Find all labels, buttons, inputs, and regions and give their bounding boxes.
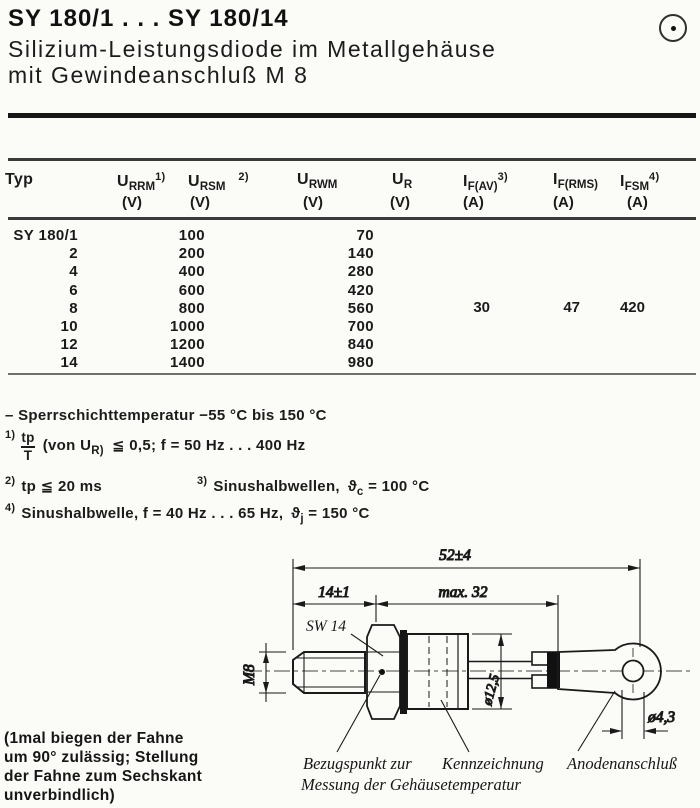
unit-ifav: (A) — [463, 194, 484, 211]
unit-ifrms: (A) — [553, 194, 574, 211]
footnote-3: 3)Sinushalbwellen,ϑc = 100 °C — [197, 475, 429, 498]
circled-dot-icon — [659, 14, 687, 42]
reference-point-dot — [379, 669, 385, 675]
table-cell: 600 — [90, 282, 205, 300]
footnote-text: (von UR)≦ 0,5; f = 50 Hz . . . 400 Hz — [43, 436, 306, 457]
col-header-ursm: URSM2) — [188, 171, 249, 193]
column-urrm: 100 200 400 600 800 1000 1200 1400 — [90, 227, 205, 373]
dimension-thread: M8 — [241, 643, 286, 702]
table-cell: 6 — [0, 282, 78, 300]
table-cell: 800 — [90, 300, 205, 318]
label-anode-terminal: Anodenanschluß — [566, 754, 677, 773]
footnote-marker: 3) — [197, 475, 207, 487]
note-line: unverbindlich) — [4, 786, 202, 805]
table-cell: 280 — [260, 263, 374, 281]
note-line: der Fahne zum Sechskant — [4, 767, 202, 786]
col-header-ifav: IF(AV)3) — [463, 171, 508, 193]
value-ifav: 30 — [430, 299, 490, 316]
table-cell: 10 — [0, 318, 78, 336]
unit-ursm: (V) — [190, 194, 210, 211]
table-cell: 400 — [90, 263, 205, 281]
table-cell: SY 180/1 — [0, 227, 78, 245]
col-header-urrm: URRM1) — [117, 171, 165, 193]
datasheet-page: SY 180/1 . . . SY 180/14 Silizium-Leistu… — [0, 0, 700, 808]
column-typ: SY 180/1 2 4 6 8 10 12 14 — [0, 227, 78, 373]
footnote-marker: 1) — [5, 429, 15, 441]
fraction-tp-T: tpT — [21, 431, 34, 463]
unit-ur: (V) — [390, 194, 410, 211]
dim-label: SW 14 — [306, 618, 346, 635]
dot — [671, 26, 676, 31]
table-bottom-rule — [8, 373, 696, 375]
footnote-4: 4)Sinushalbwelle, f = 40 Hz . . . 65 Hz,… — [5, 502, 370, 525]
value-ifsm: 420 — [585, 299, 645, 316]
label-reference-point-line2: Messung der Gehäusetemperatur — [300, 775, 522, 794]
footnote-marker: 2) — [5, 475, 15, 487]
dimension-stud-length: 14±1 — [293, 584, 376, 622]
table-cell: 560 — [260, 300, 374, 318]
table-cell: 2 — [0, 245, 78, 263]
label-marking: Kennzeichnung — [441, 754, 544, 773]
junction-temp-note: – Sperrschichttemperatur −55 °C bis 150 … — [5, 407, 327, 424]
label-reference-point-line1: Bezugspunkt zur — [303, 754, 412, 773]
note-line: um 90° zulässig; Stellung — [4, 748, 202, 767]
page-subtitle-line2: mit Gewindeanschluß M 8 — [8, 62, 308, 89]
col-header-ifsm: IFSM4) — [620, 171, 659, 193]
table-cell: 1200 — [90, 336, 205, 354]
table-cell: 700 — [260, 318, 374, 336]
table-cell: 4 — [0, 263, 78, 281]
col-header-typ: Typ — [5, 171, 33, 189]
table-cell: 140 — [260, 245, 374, 263]
dim-label: M8 — [241, 664, 258, 686]
dim-label: ø4,3 — [647, 709, 675, 726]
flag-bend-note: (1mal biegen der Fahne um 90° zulässig; … — [4, 729, 202, 805]
note-line: (1mal biegen der Fahne — [4, 729, 202, 748]
footnote-marker: 4) — [5, 502, 15, 514]
dim-label: max. 32 — [438, 584, 487, 601]
table-cell: 12 — [0, 336, 78, 354]
dimension-hex-width: SW 14 — [306, 618, 383, 656]
footnote-2: 2)tp ≦ 20 ms — [5, 475, 102, 495]
leader-lines — [337, 669, 615, 752]
table-cell: 14 — [0, 354, 78, 372]
unit-ifsm: (A) — [627, 194, 648, 211]
table-cell: 200 — [90, 245, 205, 263]
page-subtitle-line1: Silizium-Leistungsdiode im Metallgehäuse — [8, 36, 496, 63]
table-top-rule — [8, 158, 696, 161]
diode-body — [293, 625, 661, 719]
value-ifrms: 47 — [520, 299, 580, 316]
table-cell: 1400 — [90, 354, 205, 372]
col-header-ifrms: IF(RMS) — [553, 171, 598, 191]
col-header-urwm: URWM — [297, 171, 337, 191]
dimension-hole-diameter: ø4,3 — [602, 690, 675, 739]
table-cell: 420 — [260, 282, 374, 300]
title-divider-rule — [8, 113, 696, 118]
unit-urwm: (V) — [303, 194, 323, 211]
dim-label: 52±4 — [439, 547, 471, 564]
column-urwm: 70 140 280 420 560 700 840 980 — [260, 227, 374, 373]
table-cell: 70 — [260, 227, 374, 245]
table-cell: 980 — [260, 354, 374, 372]
page-title: SY 180/1 . . . SY 180/14 — [8, 5, 289, 33]
flange — [400, 630, 407, 714]
table-header-rule — [8, 217, 696, 220]
col-header-ur: UR — [392, 171, 412, 191]
table-cell: 1000 — [90, 318, 205, 336]
footnote-1: 1) tpT (von UR)≦ 0,5; f = 50 Hz . . . 40… — [5, 431, 305, 463]
table-cell: 100 — [90, 227, 205, 245]
table-cell: 840 — [260, 336, 374, 354]
unit-urrm: (V) — [122, 194, 142, 211]
flag-hole — [623, 661, 644, 682]
table-cell: 8 — [0, 300, 78, 318]
dim-label: 14±1 — [318, 584, 350, 601]
